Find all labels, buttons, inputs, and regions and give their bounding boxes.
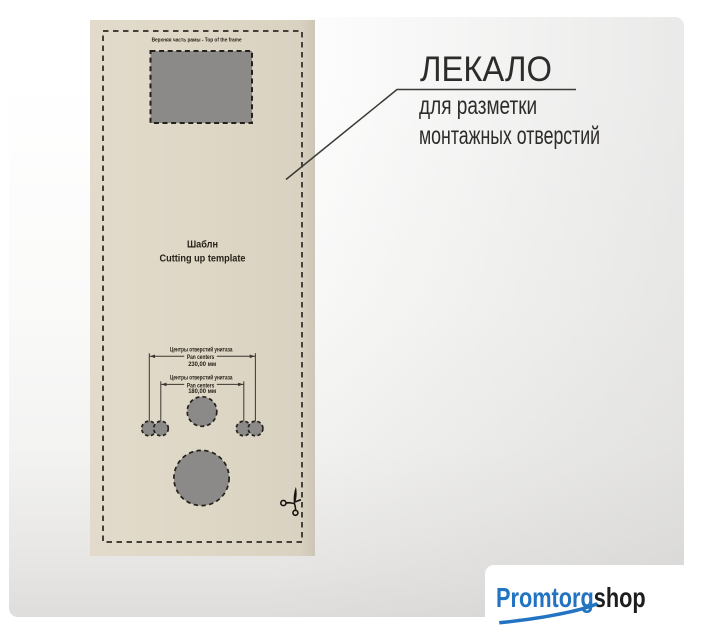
svg-text:Pan centers: Pan centers [187,355,215,361]
svg-text:Центры отверстий унитаза: Центры отверстий унитаза [170,375,233,382]
svg-text:Верхняя часть рамы - Top of th: Верхняя часть рамы - Top of the frame [152,38,243,44]
svg-text:Шаблн: Шаблн [187,239,218,251]
svg-text:Центры отверстий унитаза: Центры отверстий унитаза [170,346,233,353]
svg-text:230,00 мм: 230,00 мм [188,362,217,368]
svg-text:Cutting up template: Cutting up template [160,254,246,265]
svg-text:180,00 мм: 180,00 мм [188,389,217,395]
